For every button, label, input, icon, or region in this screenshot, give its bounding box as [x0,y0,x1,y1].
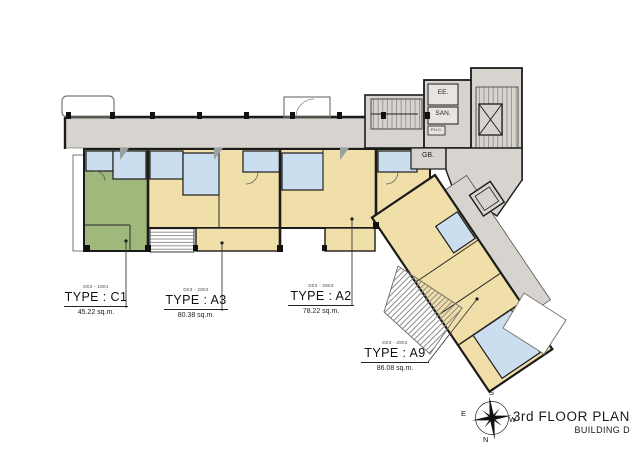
unit-type: TYPE : C1 [64,290,128,307]
unit-type: TYPE : A2 [288,289,354,306]
unit-label-a9: D03 - 2804 TYPE : A9 86.08 sq.m. [361,340,429,372]
unit-c1-bath [86,151,113,171]
unit-area: 80.38 sq.m. [164,312,228,319]
unit-a3-balcony [196,228,280,251]
unit-type: TYPE : A9 [361,346,429,363]
unit-c1-entry [113,151,146,179]
floor-plan-page: EE. SAN. P.H.C. GB. D03 - 1801 TYPE : C1… [0,0,638,451]
unit-area: 86.08 sq.m. [361,365,429,372]
unit-area: 45.22 sq.m. [64,309,128,316]
unit-a3-bath-east [243,151,280,172]
page-subtitle: BUILDING D [498,425,630,436]
unit-area: 78.22 sq.m. [288,308,354,315]
room-label-san: SAN. [430,110,456,117]
unit-label-c1: D03 - 1801 TYPE : C1 45.22 sq.m. [64,284,128,316]
unit-label-a2: D03 - 2803 TYPE : A2 78.22 sq.m. [288,283,354,315]
unit-a2-balcony [325,228,375,251]
compass-south-label: S [489,388,494,397]
unit-a3-bath-mid [183,153,219,195]
room-label-gb: GB. [415,152,441,159]
unit-label-a3: D03 - 2802 TYPE : A3 80.38 sq.m. [164,287,228,319]
door-arc-corridor [296,99,314,117]
title-block: 3rd FLOOR PLAN BUILDING D [498,409,630,436]
unit-a3-bath-west [150,151,183,179]
unit-c1-side-balcony [73,155,84,251]
room-label-ee: EE. [431,89,455,96]
unit-a2-bath [282,153,323,190]
floor-plan-drawing [0,0,638,451]
unit-type: TYPE : A3 [164,293,228,310]
stair-south [150,226,194,252]
room-label-phc: P.H.C. [428,127,445,132]
compass-east-label: E [461,409,466,418]
page-title: 3rd FLOOR PLAN [498,409,630,425]
compass-north-label: N [483,435,488,444]
